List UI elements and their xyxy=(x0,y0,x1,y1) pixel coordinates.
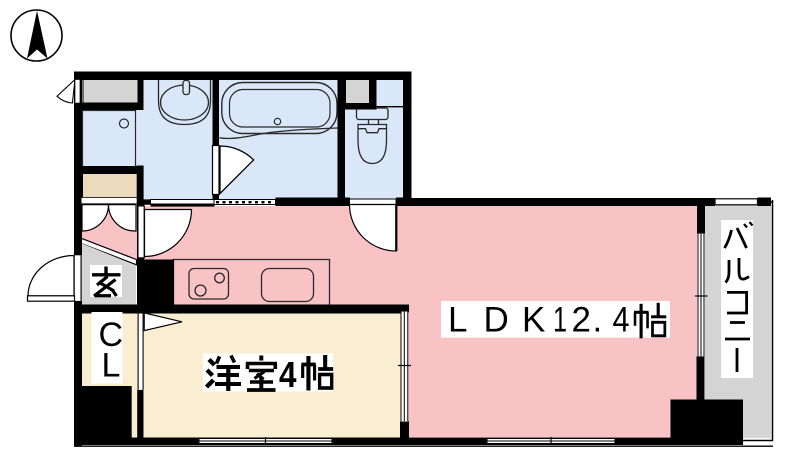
svg-text:K: K xyxy=(522,300,545,339)
svg-text:2: 2 xyxy=(572,300,591,339)
svg-text:L: L xyxy=(102,347,121,385)
svg-text:.: . xyxy=(593,300,603,339)
svg-text:4: 4 xyxy=(613,300,630,339)
svg-text:1: 1 xyxy=(553,300,567,339)
svg-text:D: D xyxy=(484,300,509,339)
svg-text:4: 4 xyxy=(279,354,297,395)
svg-text:L: L xyxy=(448,300,467,339)
